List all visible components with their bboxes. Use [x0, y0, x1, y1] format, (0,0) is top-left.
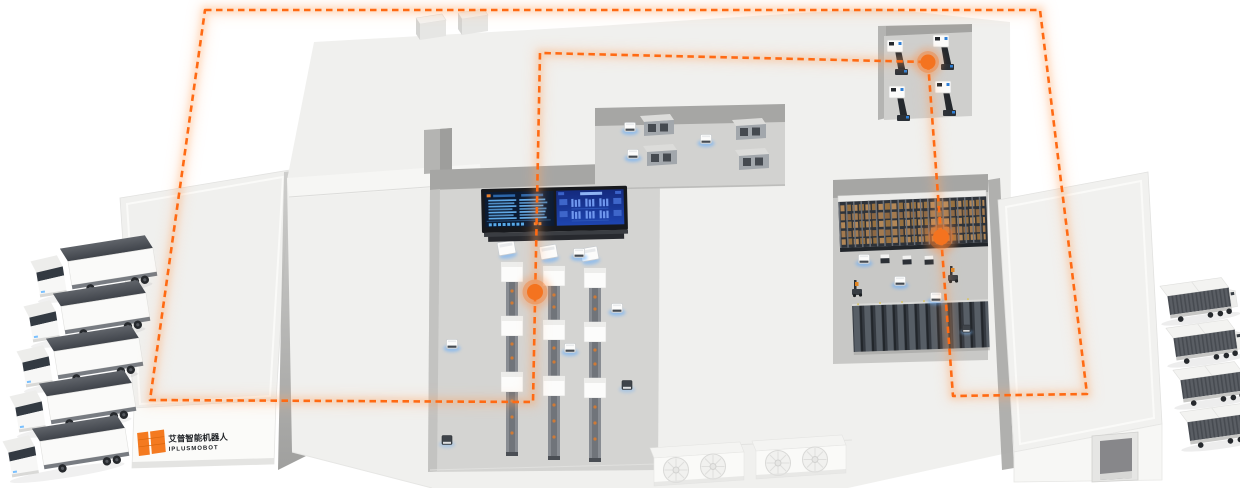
hvac-unit: [752, 435, 846, 479]
workcell: [640, 114, 674, 136]
company-name-zh: 艾普智能机器人: [168, 432, 228, 444]
waypoint-dot: [924, 220, 958, 254]
workcell: [735, 148, 769, 170]
workcell-bay: [595, 104, 785, 190]
hvac-unit: [650, 442, 744, 486]
control-dashboard: [481, 186, 628, 242]
logo-mark: [137, 432, 150, 456]
logo-mark: [150, 430, 166, 455]
door-notch: [1092, 432, 1138, 482]
workcell: [643, 144, 677, 166]
factory-illustration: 艾普智能机器人 IPLUSMOBOT: [0, 0, 1240, 488]
isometric-scene: 艾普智能机器人 IPLUSMOBOT: [0, 0, 1240, 488]
waypoint-dot: [518, 275, 552, 309]
outbound-trailer-fleet: [1156, 276, 1240, 455]
waypoint-dot: [913, 47, 943, 77]
workcell: [732, 118, 766, 140]
roof-vent: [416, 14, 446, 40]
screen-right-panel: [556, 189, 624, 226]
